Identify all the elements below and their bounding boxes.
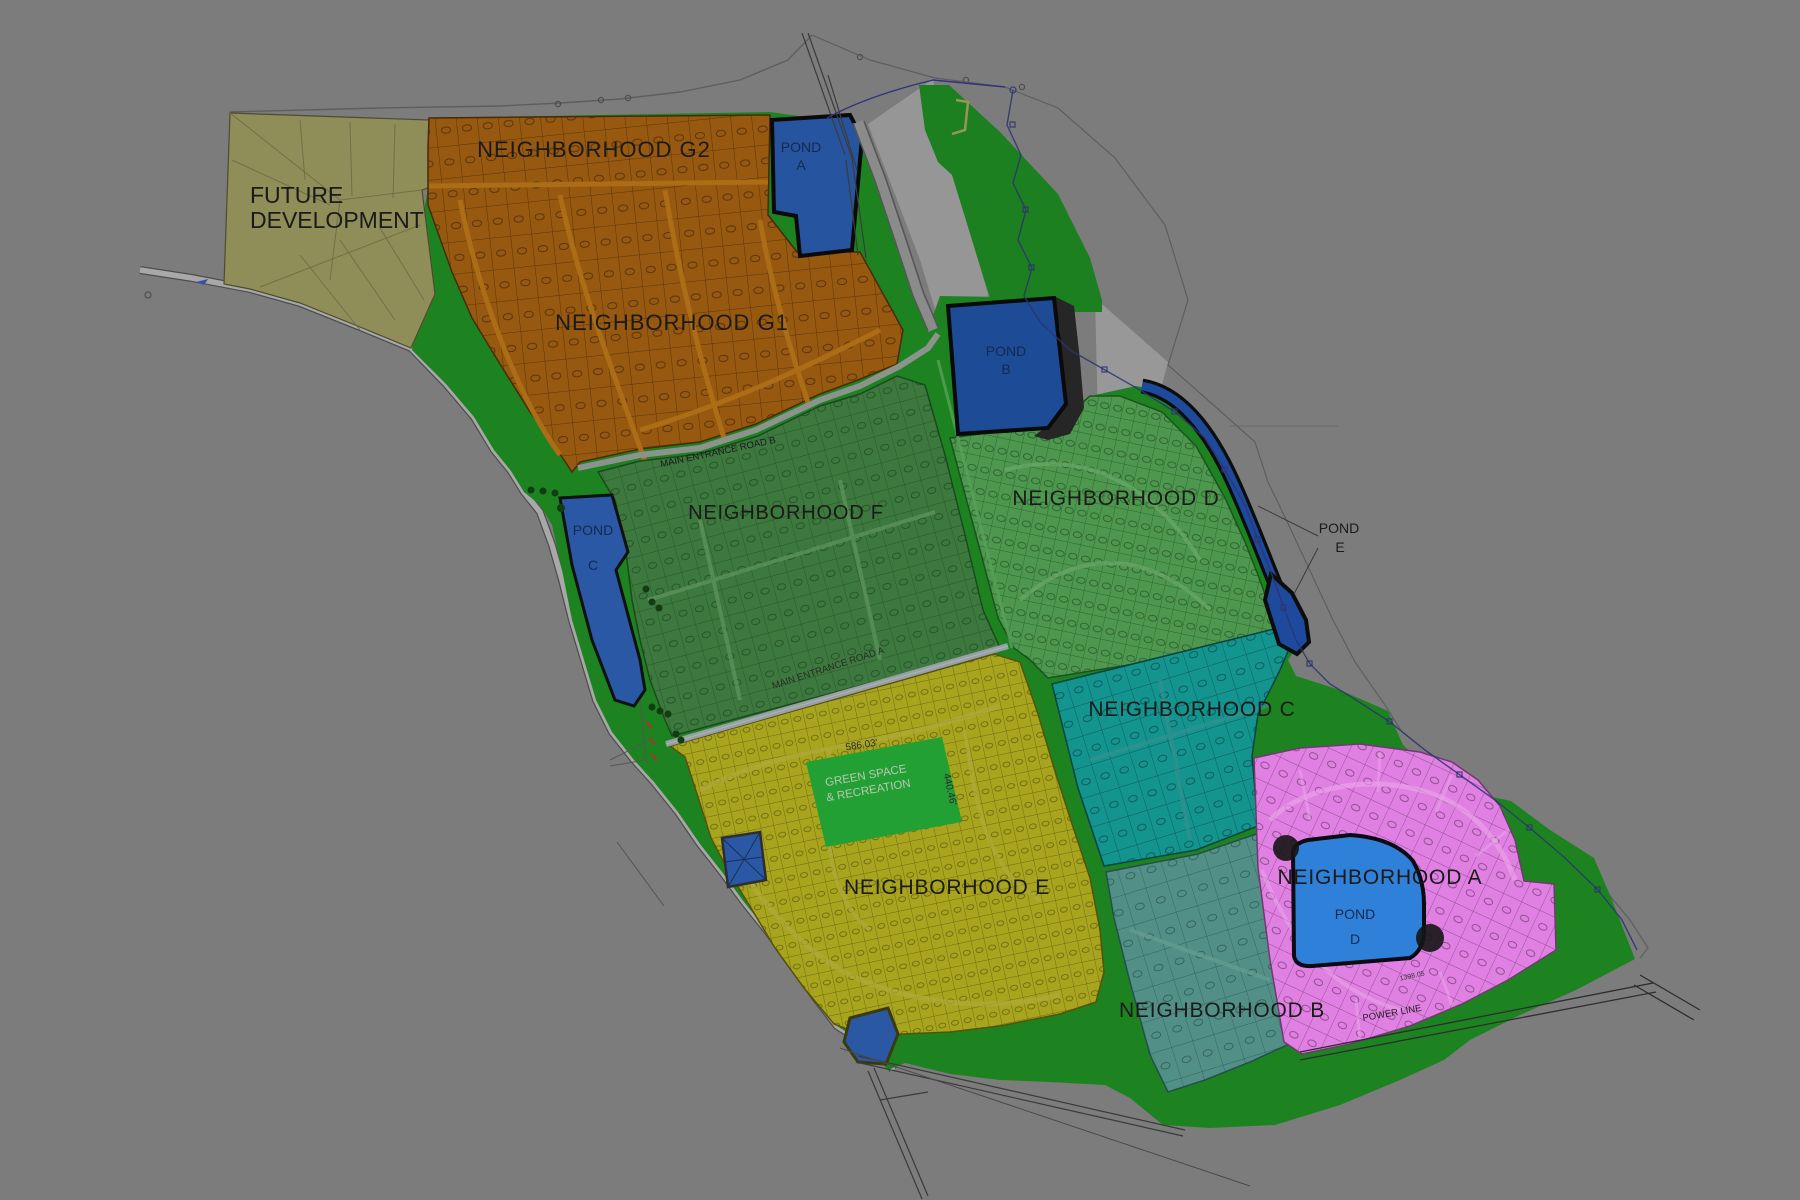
svg-text:B: B xyxy=(1001,361,1010,377)
svg-text:DEVELOPMENT: DEVELOPMENT xyxy=(250,207,424,233)
svg-text:NEIGHBORHOOD A: NEIGHBORHOOD A xyxy=(1278,866,1483,889)
svg-text:POND: POND xyxy=(986,343,1026,359)
svg-text:FUTURE: FUTURE xyxy=(250,182,343,208)
svg-text:POND: POND xyxy=(1335,906,1375,922)
svg-text:NEIGHBORHOOD D: NEIGHBORHOOD D xyxy=(1012,487,1219,510)
svg-text:A: A xyxy=(796,157,806,173)
svg-text:NEIGHBORHOOD E: NEIGHBORHOOD E xyxy=(844,876,1050,899)
svg-text:POND: POND xyxy=(573,522,613,538)
svg-text:NEIGHBORHOOD G1: NEIGHBORHOOD G1 xyxy=(555,310,789,335)
svg-text:POND: POND xyxy=(781,139,821,155)
svg-text:D: D xyxy=(1350,931,1360,947)
svg-text:NEIGHBORHOOD F: NEIGHBORHOOD F xyxy=(688,502,884,524)
svg-text:POND: POND xyxy=(1319,520,1359,536)
svg-text:NEIGHBORHOOD G2: NEIGHBORHOOD G2 xyxy=(477,137,711,162)
svg-text:NEIGHBORHOOD C: NEIGHBORHOOD C xyxy=(1088,698,1295,721)
svg-text:E: E xyxy=(1335,539,1344,555)
svg-text:NEIGHBORHOOD B: NEIGHBORHOOD B xyxy=(1119,999,1325,1022)
svg-text:C: C xyxy=(588,557,598,573)
